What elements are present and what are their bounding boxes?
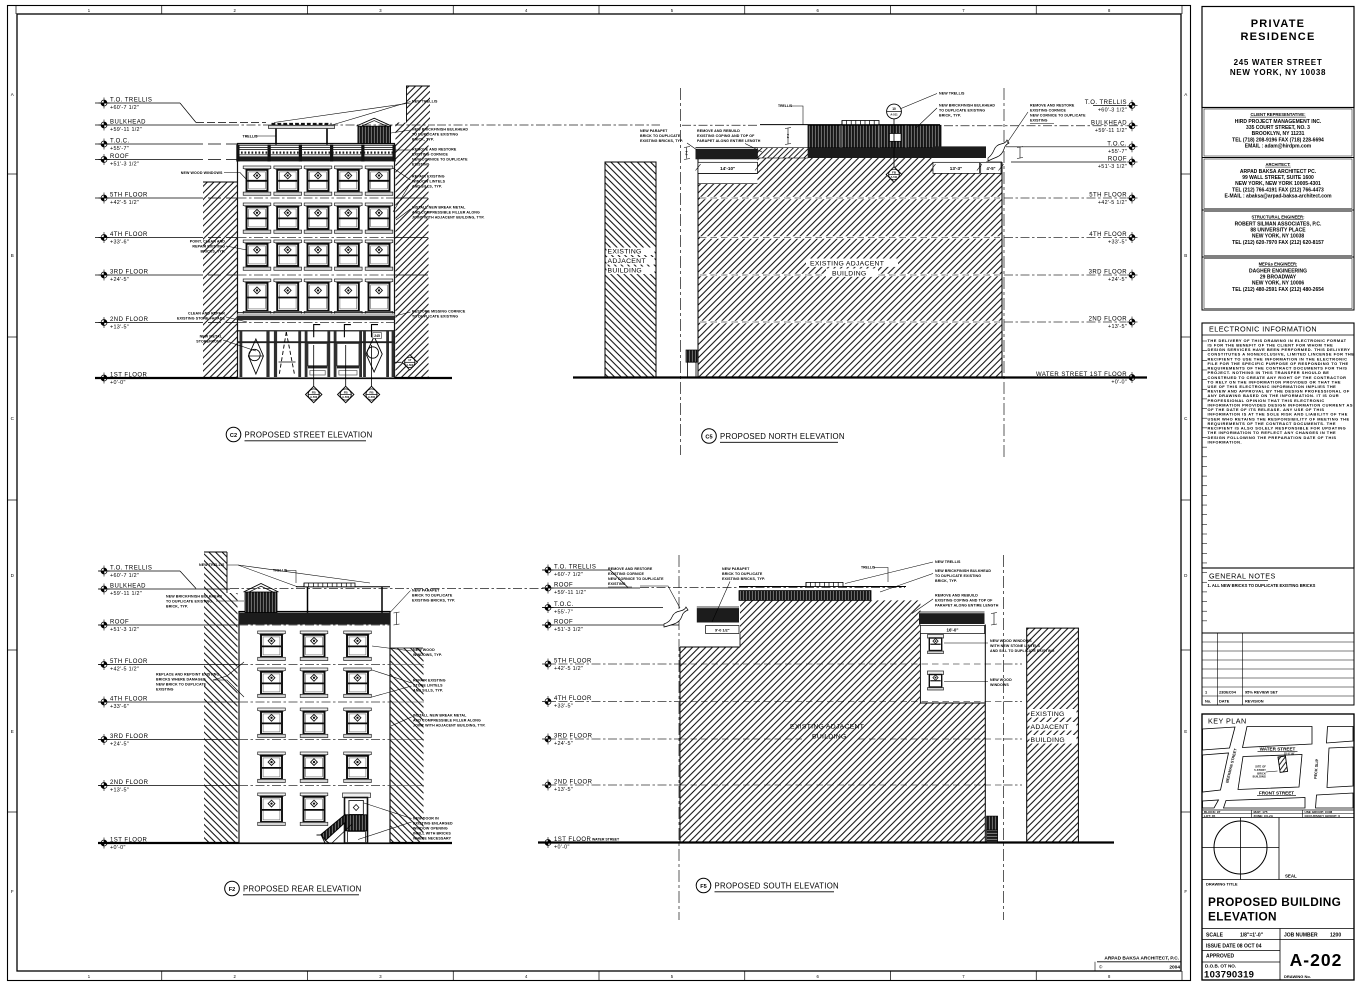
svg-text:REMOVE AND RESTORE: REMOVE AND RESTORE xyxy=(412,148,457,152)
svg-text:ARCHITECT:: ARCHITECT: xyxy=(1265,162,1290,167)
svg-text:TRELLIS: TRELLIS xyxy=(861,566,876,570)
svg-text:BRICK, TYP.: BRICK, TYP. xyxy=(935,579,957,583)
svg-text:A-502: A-502 xyxy=(406,363,414,367)
svg-text:BUILDING: BUILDING xyxy=(1253,775,1266,779)
svg-text:A: A xyxy=(1184,92,1187,97)
svg-text:10: 10 xyxy=(892,107,896,111)
svg-text:+13'-5": +13'-5" xyxy=(110,325,129,331)
svg-text:ADJACENT: ADJACENT xyxy=(1031,724,1069,731)
svg-text:A-202: A-202 xyxy=(1290,950,1343,970)
svg-text:TEL (212) 480-2591 FAX (212) 4: TEL (212) 480-2591 FAX (212) 480-2654 xyxy=(1232,287,1324,293)
svg-text:BRICK: BRICK xyxy=(1257,771,1266,775)
svg-text:REPAIR EXISTING: REPAIR EXISTING xyxy=(413,679,446,683)
svg-text:OCCUPANCY GROUP: 6: OCCUPANCY GROUP: 6 xyxy=(1305,814,1341,818)
svg-text:ROBERT SILMAN ASSOCIATES, P.C.: ROBERT SILMAN ASSOCIATES, P.C. xyxy=(1235,222,1322,228)
svg-text:NEW TRELLIS: NEW TRELLIS xyxy=(199,563,225,567)
svg-text:9'-0 1/2": 9'-0 1/2" xyxy=(715,628,730,632)
svg-text:2ND FLOOR: 2ND FLOOR xyxy=(110,317,149,323)
svg-text:KEY PLAN: KEY PLAN xyxy=(1208,717,1247,726)
svg-text:BRICKS WHERE DAMAGED: BRICKS WHERE DAMAGED xyxy=(156,678,206,682)
svg-text:+13'-5": +13'-5" xyxy=(1108,324,1127,330)
svg-text:EXISTING ADJACENT: EXISTING ADJACENT xyxy=(810,261,884,268)
svg-text:NEW TRELLIS: NEW TRELLIS xyxy=(935,560,961,564)
svg-text:NEW TRELLIS: NEW TRELLIS xyxy=(412,100,438,104)
svg-text:ZONE: C6-2A: ZONE: C6-2A xyxy=(1254,814,1274,818)
svg-text:A-511: A-511 xyxy=(890,112,898,116)
svg-text:+0'-0": +0'-0" xyxy=(110,845,126,851)
svg-text:+51'-3 1/2": +51'-3 1/2" xyxy=(110,627,139,633)
svg-text:5TH FLOOR: 5TH FLOOR xyxy=(110,659,148,665)
svg-text:1. ALL NEW BRICKS TO DUPLICATE: 1. ALL NEW BRICKS TO DUPLICATE EXISTING … xyxy=(1208,583,1316,588)
svg-text:T.O. TRELLIS: T.O. TRELLIS xyxy=(110,98,152,104)
svg-text:ELECTRONIC INFORMATION: ELECTRONIC INFORMATION xyxy=(1209,325,1317,334)
svg-text:TEL (212) 620-7970 FAX (212) 6: TEL (212) 620-7970 FAX (212) 620-8157 xyxy=(1232,240,1324,246)
svg-text:POINT, CLEAN AND: POINT, CLEAN AND xyxy=(190,240,226,244)
svg-text:STRUCTURAL ENGINEER:: STRUCTURAL ENGINEER: xyxy=(1252,215,1305,220)
svg-text:REMOVE AND RESTORE: REMOVE AND RESTORE xyxy=(1030,104,1075,108)
svg-text:WINDOW LINTELS: WINDOW LINTELS xyxy=(412,180,446,184)
svg-text:NEW YORK, NY 10006: NEW YORK, NY 10006 xyxy=(1252,281,1305,287)
svg-text:23DEC04: 23DEC04 xyxy=(1219,689,1237,694)
svg-text:PARAPET ALONG ENTIRE LENGTH: PARAPET ALONG ENTIRE LENGTH xyxy=(935,604,999,608)
svg-text:T.O. TRELLIS: T.O. TRELLIS xyxy=(110,566,152,572)
svg-text:+59'-11 1/2": +59'-11 1/2" xyxy=(110,591,142,597)
svg-text:A-500: A-500 xyxy=(310,395,318,399)
svg-text:+0'-0": +0'-0" xyxy=(554,845,570,851)
svg-text:AND SILL TO DUPLICATE EXISTING: AND SILL TO DUPLICATE EXISTING xyxy=(990,649,1055,653)
svg-text:FRONT STREET: FRONT STREET xyxy=(1259,791,1294,796)
svg-text:AND COMPRESSIBLE FILLER ALONG: AND COMPRESSIBLE FILLER ALONG xyxy=(412,211,480,215)
svg-text:29 BROADWAY: 29 BROADWAY xyxy=(1260,275,1297,281)
svg-text:DRAWING TITLE: DRAWING TITLE xyxy=(1206,882,1238,887)
svg-text:+24'-5": +24'-5" xyxy=(554,741,573,747)
svg-text:WATER STREET: WATER STREET xyxy=(1260,747,1296,752)
svg-text:NEW WOOD: NEW WOOD xyxy=(413,648,435,652)
svg-text:REMOVE AND REBUILD: REMOVE AND REBUILD xyxy=(697,129,740,133)
svg-text:+55'-7": +55'-7" xyxy=(110,146,129,152)
svg-text:NEW WOOD: NEW WOOD xyxy=(990,678,1012,682)
svg-text:PROPOSED STREET ELEVATION: PROPOSED STREET ELEVATION xyxy=(245,431,373,440)
svg-text:+55'-7": +55'-7" xyxy=(1108,149,1127,155)
svg-text:EXISTING: EXISTING xyxy=(608,582,626,586)
svg-text:NEW BRICK TO DUPLICATE: NEW BRICK TO DUPLICATE xyxy=(156,683,207,687)
svg-text:EXISTING: EXISTING xyxy=(1031,711,1065,718)
svg-text:EXISTING BRICKS, TYP.: EXISTING BRICKS, TYP. xyxy=(640,139,683,143)
svg-text:+60'-7 1/2": +60'-7 1/2" xyxy=(110,573,139,579)
svg-text:ELEVATION: ELEVATION xyxy=(1208,910,1277,924)
svg-text:EXISTING BRICKS, TYP.: EXISTING BRICKS, TYP. xyxy=(412,599,455,603)
svg-text:LOT: 35: LOT: 35 xyxy=(1204,814,1215,818)
svg-text:EXISTING ENLARGED: EXISTING ENLARGED xyxy=(413,822,453,826)
svg-text:BRICK, TYP.: BRICK, TYP. xyxy=(166,605,188,609)
svg-text:F2: F2 xyxy=(229,887,236,893)
svg-text:NEW METAL: NEW METAL xyxy=(200,335,223,339)
svg-text:+51'-3 1/2": +51'-3 1/2" xyxy=(1098,164,1127,170)
svg-text:PARAPET ALONG ENTIRE LENGTH: PARAPET ALONG ENTIRE LENGTH xyxy=(697,139,761,143)
svg-text:4TH FLOOR: 4TH FLOOR xyxy=(554,696,592,702)
svg-text:99 WALL STREET, SUITE 1600: 99 WALL STREET, SUITE 1600 xyxy=(1242,175,1314,181)
svg-text:+59'-11 1/2": +59'-11 1/2" xyxy=(554,590,586,596)
svg-text:4TH FLOOR: 4TH FLOOR xyxy=(110,697,148,703)
svg-text:AND SILLS, TYP.: AND SILLS, TYP. xyxy=(412,185,442,189)
svg-text:MEP&s ENGINEER:: MEP&s ENGINEER: xyxy=(1259,262,1298,267)
svg-text:+59'-11 1/2": +59'-11 1/2" xyxy=(110,127,142,133)
svg-text:245 WATER STREET: 245 WATER STREET xyxy=(1234,58,1323,67)
svg-text:T.O.C.: T.O.C. xyxy=(1107,141,1127,147)
svg-text:ISSUE DATE 08 OCT 04: ISSUE DATE 08 OCT 04 xyxy=(1206,943,1262,949)
svg-text:3RD FLOOR: 3RD FLOOR xyxy=(554,734,593,740)
svg-text:PRIVATE: PRIVATE xyxy=(1251,18,1305,30)
svg-text:A-500: A-500 xyxy=(368,395,376,399)
svg-text:NEW BRICKFINISH BULKHEAD: NEW BRICKFINISH BULKHEAD xyxy=(166,595,222,599)
svg-text:+24'-5": +24'-5" xyxy=(110,742,129,748)
svg-text:REMOVE AND RESTORE: REMOVE AND RESTORE xyxy=(608,567,653,571)
svg-text:25’-6” 95’: 25’-6” 95’ xyxy=(1284,753,1295,756)
svg-text:NEW CORNICE TO DUPLICATE: NEW CORNICE TO DUPLICATE xyxy=(1030,114,1086,118)
svg-text:REPLACE AND REPOINT EXISTING: REPLACE AND REPOINT EXISTING xyxy=(156,673,219,677)
svg-text:NEW BRICKFINISH BULKHEAD: NEW BRICKFINISH BULKHEAD xyxy=(412,128,468,132)
svg-text:C5: C5 xyxy=(705,435,712,441)
svg-text:+0'-0": +0'-0" xyxy=(110,380,126,386)
svg-text:E: E xyxy=(11,729,14,734)
svg-text:BUILDING: BUILDING xyxy=(1031,737,1066,744)
svg-text:E-MAIL : abaksa@arpad-baksa-ar: E-MAIL : abaksa@arpad-baksa-architect.co… xyxy=(1224,193,1332,199)
svg-text:NEW DOOR IN: NEW DOOR IN xyxy=(413,817,439,821)
svg-text:EXISTING: EXISTING xyxy=(156,688,174,692)
svg-text:+33'-6": +33'-6" xyxy=(110,240,129,246)
svg-text:PROPOSED REAR ELEVATION: PROPOSED REAR ELEVATION xyxy=(243,885,362,894)
svg-text:T.O. TRELLIS: T.O. TRELLIS xyxy=(1085,100,1127,106)
svg-text:2ND FLOOR: 2ND FLOOR xyxy=(554,780,593,786)
svg-text:+33'-5": +33'-5" xyxy=(554,704,573,710)
svg-text:TO DUPLICATE EXISTING: TO DUPLICATE EXISTING xyxy=(939,109,985,113)
svg-text:+24'-5": +24'-5" xyxy=(1108,277,1127,283)
svg-text:+42'-5 1/2": +42'-5 1/2" xyxy=(554,666,583,672)
svg-text:SCALE: SCALE xyxy=(1206,932,1224,938)
svg-text:PROPOSED BUILDING: PROPOSED BUILDING xyxy=(1208,895,1341,909)
svg-text:REPAIR EXISTING: REPAIR EXISTING xyxy=(412,175,445,179)
svg-text:AND COMPRESSIBLE FILLER ALONG: AND COMPRESSIBLE FILLER ALONG xyxy=(413,719,481,723)
svg-text:BRICK TO DUPLICATE: BRICK TO DUPLICATE xyxy=(412,594,453,598)
svg-text:No.: No. xyxy=(1205,698,1211,703)
svg-text:ROOF: ROOF xyxy=(554,583,573,589)
svg-text:BULKHEAD: BULKHEAD xyxy=(110,120,146,126)
svg-text:+42'-5 1/2": +42'-5 1/2" xyxy=(110,200,139,206)
svg-text:WHERE NECESSARY: WHERE NECESSARY xyxy=(413,837,452,841)
svg-text:B: B xyxy=(11,253,14,258)
svg-text:DAGHER ENGINEERING: DAGHER ENGINEERING xyxy=(1249,269,1307,275)
svg-text:ADJACENT: ADJACENT xyxy=(608,258,646,265)
svg-text:NEW BRICKFINISH BULKHEAD: NEW BRICKFINISH BULKHEAD xyxy=(935,569,991,573)
svg-text:95% REVIEW SET: 95% REVIEW SET xyxy=(1245,689,1278,694)
svg-text:NEW PARAPET: NEW PARAPET xyxy=(722,567,750,571)
svg-text:+60'-7 1/2": +60'-7 1/2" xyxy=(554,572,583,578)
svg-text:1200: 1200 xyxy=(1330,932,1341,938)
svg-text:ROOF: ROOF xyxy=(110,154,129,160)
svg-text:3RD FLOOR: 3RD FLOOR xyxy=(110,734,149,740)
svg-text:TO DUPLICATE EXISTING: TO DUPLICATE EXISTING xyxy=(412,133,458,137)
svg-text:INFILL WITH BRICKS: INFILL WITH BRICKS xyxy=(413,832,451,836)
svg-text:+59'-11 1/2": +59'-11 1/2" xyxy=(1095,128,1127,134)
svg-text:REMOVE AND REBUILD: REMOVE AND REBUILD xyxy=(935,594,978,598)
svg-text:STOREFRONT: STOREFRONT xyxy=(196,340,222,344)
svg-text:BUILDING: BUILDING xyxy=(832,271,867,278)
svg-text:NEW TRELLIS: NEW TRELLIS xyxy=(939,92,965,96)
svg-text:BRICK TO DUPLICATE: BRICK TO DUPLICATE xyxy=(640,134,681,138)
svg-text:ROOF: ROOF xyxy=(554,620,573,626)
svg-text:NEW WOOD WINDOWS: NEW WOOD WINDOWS xyxy=(181,171,223,175)
svg-text:T.O. TRELLIS: T.O. TRELLIS xyxy=(554,565,596,571)
svg-text:+13'-5": +13'-5" xyxy=(110,788,129,794)
svg-text:A-500: A-500 xyxy=(342,395,350,399)
svg-text:+55'-7": +55'-7" xyxy=(554,610,573,616)
svg-text:4TH FLOOR: 4TH FLOOR xyxy=(110,232,148,238)
svg-text:ARPAD BAKSA ARCHITECT PC.: ARPAD BAKSA ARCHITECT PC. xyxy=(1240,169,1317,175)
svg-text:335 COURT STREET, NO. 3: 335 COURT STREET, NO. 3 xyxy=(1246,125,1310,131)
svg-text:3RD FLOOR: 3RD FLOOR xyxy=(1089,270,1128,276)
svg-text:EXISTING: EXISTING xyxy=(1030,119,1048,123)
svg-text:BRICK, TYP.: BRICK, TYP. xyxy=(939,114,961,118)
svg-text:+51'-3 1/2": +51'-3 1/2" xyxy=(110,162,139,168)
svg-text:C2: C2 xyxy=(230,433,237,439)
svg-text:EMAIL : adam@hirdpm.com: EMAIL : adam@hirdpm.com xyxy=(1245,143,1312,149)
svg-text:BRICK, TYP.: BRICK, TYP. xyxy=(412,138,434,142)
svg-text:EXISTING: EXISTING xyxy=(412,163,430,167)
svg-text:ROOF: ROOF xyxy=(1108,157,1127,163)
svg-text:STONE LINTELS: STONE LINTELS xyxy=(413,684,443,688)
svg-text:JOINT WITH ADJACENT BUILDING,: JOINT WITH ADJACENT BUILDING, TYP. xyxy=(412,216,484,220)
svg-text:BULKHEAD: BULKHEAD xyxy=(110,584,146,590)
svg-text:CLEAN AND REPAIR: CLEAN AND REPAIR xyxy=(188,312,225,316)
svg-text:NEW YORK, NY 10038: NEW YORK, NY 10038 xyxy=(1230,68,1326,77)
svg-text:+0'-0": +0'-0" xyxy=(1111,380,1127,386)
svg-text:HIRD PROJECT MANAGEMENT INC.: HIRD PROJECT MANAGEMENT INC. xyxy=(1235,119,1322,125)
svg-text:CLIENT REPRESENTATIVE:: CLIENT REPRESENTATIVE: xyxy=(1251,112,1306,117)
svg-text:BRICKS, TYP.: BRICKS, TYP. xyxy=(201,250,226,254)
svg-text:AND SILLS, TYP.: AND SILLS, TYP. xyxy=(413,689,443,693)
svg-text:PROPOSED SOUTH ELEVATION: PROPOSED SOUTH ELEVATION xyxy=(715,882,839,891)
svg-text:INFORMATION.: INFORMATION. xyxy=(1208,439,1243,444)
svg-text:NEW WOOD WINDOWS: NEW WOOD WINDOWS xyxy=(990,639,1032,643)
svg-text:F5: F5 xyxy=(700,884,707,890)
svg-text:B: B xyxy=(1184,253,1187,258)
svg-text:14'-10": 14'-10" xyxy=(720,166,735,171)
svg-text:ROOF: ROOF xyxy=(110,620,129,626)
svg-text:EXISTING BRICKS, TYP.: EXISTING BRICKS, TYP. xyxy=(722,577,765,581)
svg-text:REVISION: REVISION xyxy=(1245,698,1264,703)
svg-text:WITH NEW STONE LINTELS: WITH NEW STONE LINTELS xyxy=(990,644,1041,648)
svg-text:+51'-3 1/2": +51'-3 1/2" xyxy=(554,627,583,633)
svg-text:SEAL: SEAL xyxy=(1285,874,1297,879)
svg-text:+60'-7 1/2": +60'-7 1/2" xyxy=(110,105,139,111)
svg-text:+60'-3 1/2": +60'-3 1/2" xyxy=(1098,108,1127,114)
svg-text:88 UNIVERSITY PLACE: 88 UNIVERSITY PLACE xyxy=(1250,228,1306,234)
svg-text:F: F xyxy=(1184,889,1187,894)
svg-text:5-STORY: 5-STORY xyxy=(1254,768,1266,772)
svg-text:RESTORE MISSING CORNICE: RESTORE MISSING CORNICE xyxy=(412,310,466,314)
svg-text:T.O.C.: T.O.C. xyxy=(554,602,574,608)
svg-text:TO DUPLICATE EXISTING: TO DUPLICATE EXISTING xyxy=(412,315,458,319)
svg-text:DRAWING No.: DRAWING No. xyxy=(1284,974,1311,979)
svg-text:APPROVED: APPROVED xyxy=(1206,954,1234,960)
svg-text:2ND FLOOR: 2ND FLOOR xyxy=(110,780,149,786)
svg-text:EXISTING COPING AND TOP OF: EXISTING COPING AND TOP OF xyxy=(935,599,993,603)
svg-text:INSTALL NEW BREAK METAL: INSTALL NEW BREAK METAL xyxy=(412,206,466,210)
svg-text:NEW CORNICE TO DUPLICATE: NEW CORNICE TO DUPLICATE xyxy=(412,158,468,162)
svg-text:103790319: 103790319 xyxy=(1204,970,1254,981)
svg-text:WINDOW OPENING: WINDOW OPENING xyxy=(413,827,448,831)
svg-text:+33'-6": +33'-6" xyxy=(110,704,129,710)
svg-text:+42'-5 1/2": +42'-5 1/2" xyxy=(110,667,139,673)
svg-text:17: 17 xyxy=(408,358,412,362)
svg-text:WINDOWS, TYP.: WINDOWS, TYP. xyxy=(413,653,442,657)
svg-text:GENERAL NOTES: GENERAL NOTES xyxy=(1209,572,1276,581)
svg-text:NEW YORK, NY 10038: NEW YORK, NY 10038 xyxy=(1252,234,1305,240)
svg-text:EXISTING STONE FACADE: EXISTING STONE FACADE xyxy=(177,317,225,321)
svg-text:NEW BRICKFINISH BULKHEAD: NEW BRICKFINISH BULKHEAD xyxy=(939,104,995,108)
svg-text:EXISTING CORNICE: EXISTING CORNICE xyxy=(1030,109,1066,113)
svg-text:WATER STREET: WATER STREET xyxy=(592,838,620,842)
svg-text:5TH FLOOR: 5TH FLOOR xyxy=(1089,193,1127,199)
svg-text:INSTALL NEW BREAK METAL: INSTALL NEW BREAK METAL xyxy=(413,714,467,718)
svg-text:RESIDENCE: RESIDENCE xyxy=(1241,31,1316,43)
svg-text:REPAIR EXISTING: REPAIR EXISTING xyxy=(192,245,225,249)
svg-text:16'-0": 16'-0" xyxy=(947,627,959,632)
svg-text:BULKHEAD: BULKHEAD xyxy=(1091,120,1127,126)
svg-text:E: E xyxy=(1184,729,1187,734)
svg-text:JOB NUMBER: JOB NUMBER xyxy=(1284,932,1318,938)
svg-text:+13'-5": +13'-5" xyxy=(554,787,573,793)
svg-text:TEL (212) 766-4191 FAX (212) 7: TEL (212) 766-4191 FAX (212) 766-4473 xyxy=(1232,187,1324,193)
svg-text:EXISTING COPING AND TOP OF: EXISTING COPING AND TOP OF xyxy=(697,134,755,138)
svg-text:F: F xyxy=(11,889,14,894)
svg-text:A-511: A-511 xyxy=(891,175,898,179)
svg-text:NEW PARAPET: NEW PARAPET xyxy=(412,589,440,593)
svg-text:TO DUPLICATE EXISTING: TO DUPLICATE EXISTING xyxy=(166,600,212,604)
svg-text:ARPAD BAKSA ARCHITECT, P.C.: ARPAD BAKSA ARCHITECT, P.C. xyxy=(1104,956,1179,962)
svg-text:+42'-5 1/2": +42'-5 1/2" xyxy=(1098,200,1127,206)
svg-text:NEW PARAPET: NEW PARAPET xyxy=(640,129,668,133)
svg-text:D.O.B. OT NO.: D.O.B. OT NO. xyxy=(1205,964,1236,969)
svg-text:SITE OF: SITE OF xyxy=(1255,765,1266,769)
svg-text:TRELLIS: TRELLIS xyxy=(778,104,793,108)
svg-text:4TH FLOOR: 4TH FLOOR xyxy=(1089,232,1127,238)
svg-text:4'-5": 4'-5" xyxy=(986,166,995,171)
svg-text:WINDOWS: WINDOWS xyxy=(990,683,1009,687)
svg-text:3RD FLOOR: 3RD FLOOR xyxy=(110,270,149,276)
svg-text:EXISTING: EXISTING xyxy=(608,249,642,256)
svg-text:EXISTING CORNICE: EXISTING CORNICE xyxy=(608,572,644,576)
svg-text:T.O.C.: T.O.C. xyxy=(110,139,130,145)
svg-text:2004: 2004 xyxy=(1169,965,1180,971)
svg-text:13'-3": 13'-3" xyxy=(950,166,962,171)
svg-text:+24'-5": +24'-5" xyxy=(110,277,129,283)
svg-text:WATER STREET 1ST FLOOR: WATER STREET 1ST FLOOR xyxy=(1036,372,1127,378)
svg-text:BRICK TO DUPLICATE: BRICK TO DUPLICATE xyxy=(722,572,763,576)
svg-text:DATE: DATE xyxy=(1219,698,1230,703)
svg-text:TEL (718) 208-9196 FAX (718) 2: TEL (718) 208-9196 FAX (718) 228-6694 xyxy=(1232,137,1324,143)
svg-text:NEW YORK, NEW YORK 10005-4301: NEW YORK, NEW YORK 10005-4301 xyxy=(1235,181,1321,187)
svg-text:BUILDING: BUILDING xyxy=(608,268,643,275)
svg-text:TO DUPLICATE EXISTING: TO DUPLICATE EXISTING xyxy=(935,574,981,578)
svg-text:PROPOSED NORTH ELEVATION: PROPOSED NORTH ELEVATION xyxy=(720,432,845,441)
svg-text:NEW CORNICE TO DUPLICATE: NEW CORNICE TO DUPLICATE xyxy=(608,577,664,581)
svg-text:BROOKLYN, NY 11231: BROOKLYN, NY 11231 xyxy=(1252,131,1305,137)
svg-text:EXISTING CORNICE: EXISTING CORNICE xyxy=(412,153,448,157)
svg-text:5TH FLOOR: 5TH FLOOR xyxy=(110,193,148,199)
svg-text:5TH FLOOR: 5TH FLOOR xyxy=(554,659,592,665)
svg-text:A: A xyxy=(11,92,14,97)
svg-text:5'-0: 5'-0 xyxy=(786,133,790,138)
svg-text:+33'-5": +33'-5" xyxy=(1108,240,1127,246)
svg-text:1/8"=1'-0": 1/8"=1'-0" xyxy=(1240,932,1264,938)
svg-text:245: 245 xyxy=(374,334,380,338)
svg-text:3'-6: 3'-6 xyxy=(685,150,689,155)
svg-text:JOINT WITH ADJACENT BUILDING,: JOINT WITH ADJACENT BUILDING, TYP. xyxy=(413,724,485,728)
svg-text:2ND FLOOR: 2ND FLOOR xyxy=(1089,317,1128,323)
